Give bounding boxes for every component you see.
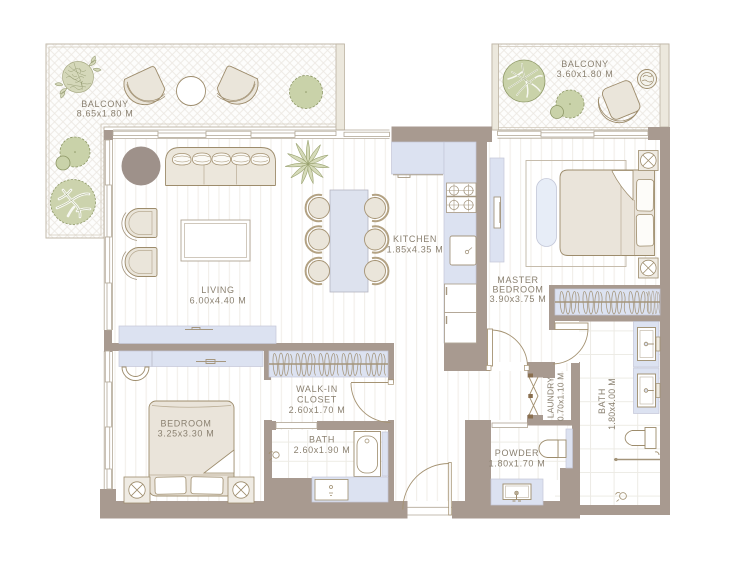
svg-text:LIVING: LIVING [201,285,234,295]
svg-text:POWDER: POWDER [495,448,539,458]
svg-text:1.85x4.35 M: 1.85x4.35 M [387,245,444,255]
svg-text:BALCONY: BALCONY [81,99,129,109]
svg-text:BALCONY: BALCONY [561,59,609,69]
svg-text:1.80x1.70 M: 1.80x1.70 M [489,459,546,469]
svg-text:BATH: BATH [309,435,335,445]
svg-text:6.00x4.40 M: 6.00x4.40 M [190,296,247,306]
svg-text:MASTER: MASTER [497,275,538,285]
svg-text:1.80x4.00 M: 1.80x4.00 M [607,378,617,430]
svg-text:KITCHEN: KITCHEN [393,234,437,244]
svg-text:2.60x1.90 M: 2.60x1.90 M [294,445,351,455]
svg-text:2.60x1.70 M: 2.60x1.70 M [289,405,346,415]
svg-text:CLOSET: CLOSET [297,395,337,405]
svg-text:3.25x3.30 M: 3.25x3.30 M [158,429,215,439]
svg-text:BATH: BATH [597,388,607,414]
svg-text:3.60x1.80 M: 3.60x1.80 M [557,69,614,79]
svg-text:8.65x1.80 M: 8.65x1.80 M [77,109,134,119]
svg-text:WALK-IN: WALK-IN [296,384,338,394]
svg-text:LAUNDRY: LAUNDRY [546,377,556,418]
svg-text:BEDROOM: BEDROOM [492,285,543,295]
svg-text:3.90x3.75 M: 3.90x3.75 M [490,294,547,304]
svg-text:0.70x1.10 M: 0.70x1.10 M [556,373,566,421]
svg-text:BEDROOM: BEDROOM [160,419,211,429]
